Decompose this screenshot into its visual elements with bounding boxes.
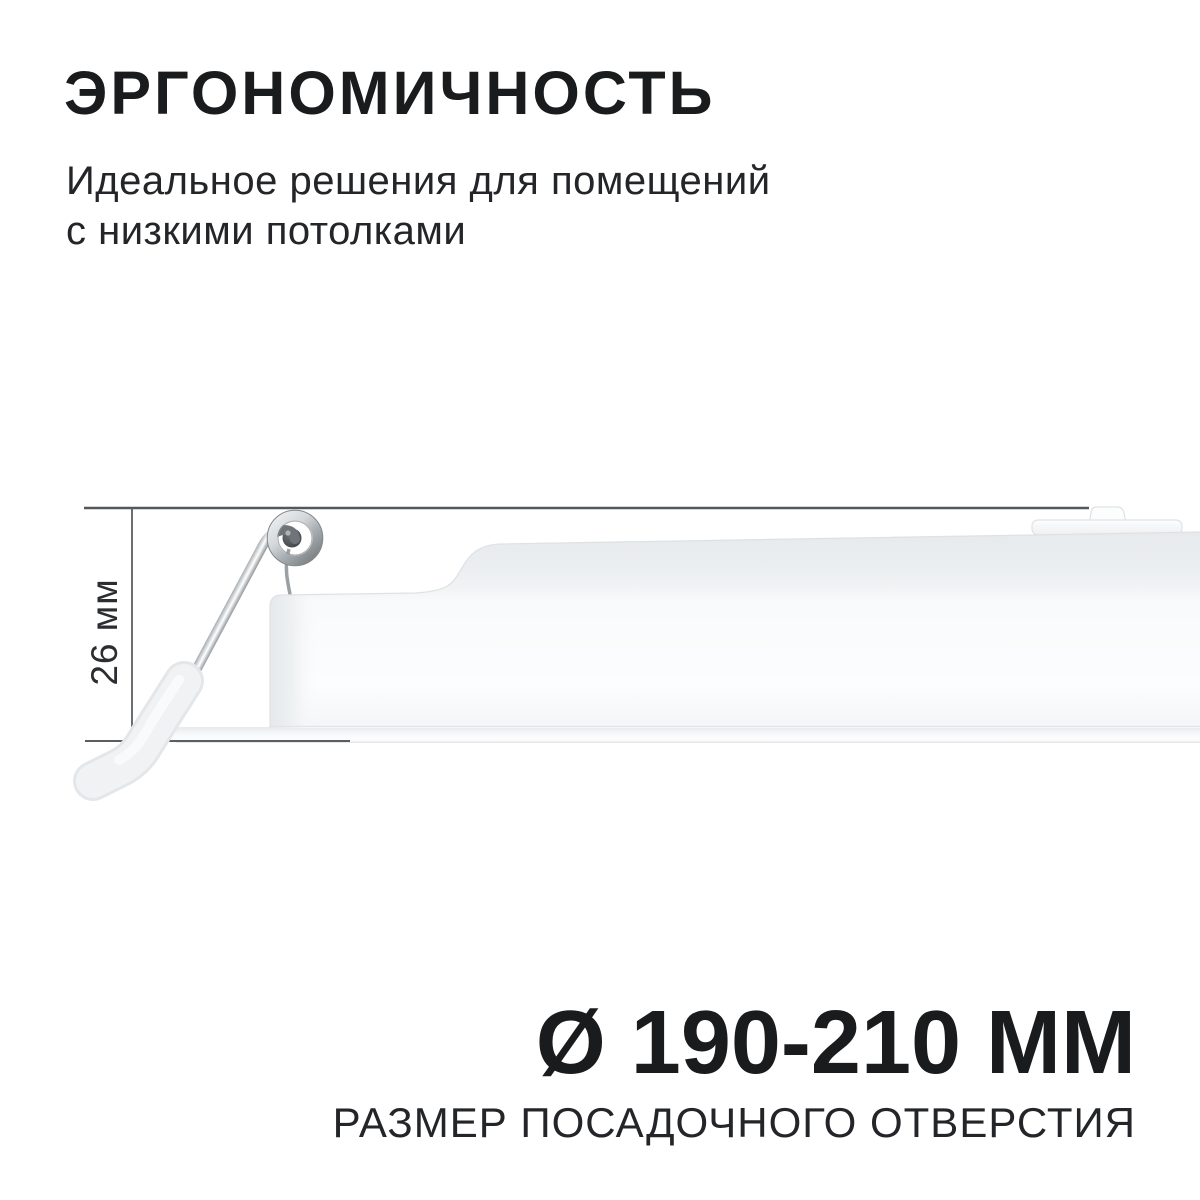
page-subtitle: Идеальное решения для помещений с низким…	[66, 156, 771, 256]
spring-pivot-highlight	[285, 530, 290, 535]
height-dimension-label: 26 мм	[84, 578, 125, 685]
subtitle-line-1: Идеальное решения для помещений	[66, 156, 771, 206]
page-title: ЭРГОНОМИЧНОСТЬ	[64, 57, 771, 130]
downlight-fixture	[170, 507, 1200, 743]
cutout-diameter-value: Ø 190-210 ММ	[333, 998, 1136, 1088]
header: ЭРГОНОМИЧНОСТЬ Идеальное решения для пом…	[64, 57, 771, 256]
body-left-shading	[270, 595, 320, 728]
product-infographic: 26 мм ЭРГОНОМИЧНОСТЬ Идеальное решения д…	[0, 0, 1200, 1200]
body-face	[270, 532, 1200, 728]
footer: Ø 190-210 ММ РАЗМЕР ПОСАДОЧНОГО ОТВЕРСТИ…	[333, 998, 1136, 1144]
cutout-diameter-caption: РАЗМЕР ПОСАДОЧНОГО ОТВЕРСТИЯ	[333, 1102, 1136, 1144]
subtitle-line-2: с низкими потолками	[66, 206, 771, 256]
